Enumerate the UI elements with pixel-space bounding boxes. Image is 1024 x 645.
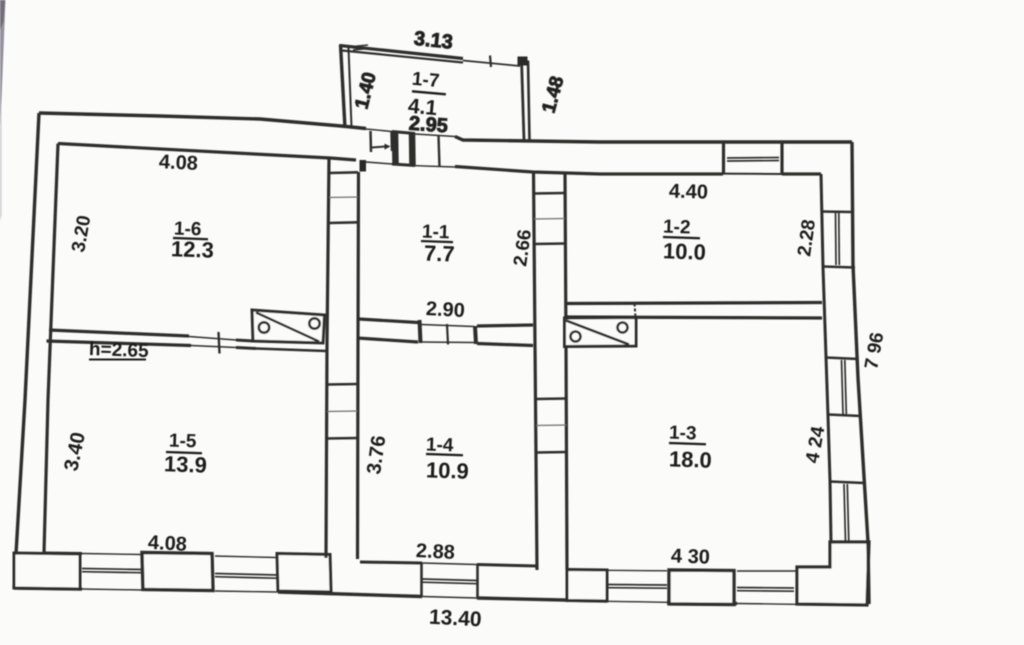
svg-text:13.40: 13.40 (428, 606, 482, 632)
svg-text:10.0: 10.0 (663, 238, 707, 264)
svg-text:1-7: 1-7 (411, 69, 440, 92)
svg-text:10.9: 10.9 (426, 457, 470, 483)
svg-text:12.3: 12.3 (171, 236, 215, 262)
svg-text:2.88: 2.88 (415, 540, 455, 564)
svg-text:2.28: 2.28 (794, 218, 820, 258)
svg-text:1-5: 1-5 (169, 430, 198, 452)
svg-text:7.7: 7.7 (424, 241, 455, 267)
svg-text:4 30: 4 30 (671, 545, 711, 568)
svg-text:1.48: 1.48 (539, 74, 569, 115)
svg-text:2.90: 2.90 (425, 298, 465, 322)
svg-text:1-2: 1-2 (663, 216, 691, 238)
svg-text:3.20: 3.20 (68, 214, 95, 254)
svg-text:3.13: 3.13 (413, 28, 454, 54)
svg-text:4 24: 4 24 (802, 424, 829, 464)
svg-text:18.0: 18.0 (669, 446, 713, 472)
svg-text:1.40: 1.40 (351, 70, 380, 111)
svg-text:7 96: 7 96 (861, 331, 888, 371)
svg-text:3.76: 3.76 (363, 434, 390, 476)
svg-text:4.40: 4.40 (669, 180, 709, 203)
svg-text:13.9: 13.9 (164, 451, 208, 477)
svg-text:4.08: 4.08 (158, 151, 198, 175)
svg-text:2.66: 2.66 (510, 228, 536, 268)
svg-text:1-3: 1-3 (669, 423, 697, 445)
svg-text:3.40: 3.40 (60, 430, 90, 473)
svg-text:4.08: 4.08 (147, 532, 187, 556)
